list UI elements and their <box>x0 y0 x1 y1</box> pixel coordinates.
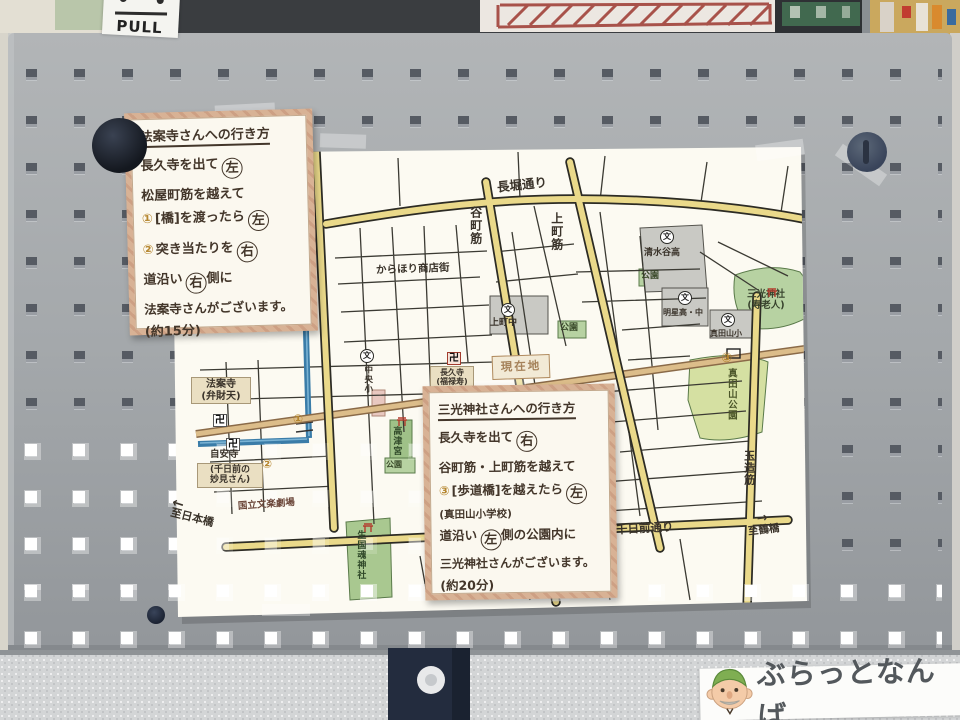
note-line: 側に <box>206 271 232 287</box>
photo-of-pegboard-map: PULL 長堀通り 谷町筋 上町筋 松屋町筋 玉造筋 千日前通り からほり商店街… <box>0 0 960 720</box>
note-line: 三光神社さんがございます。 <box>440 553 602 572</box>
step-number-3: ③ <box>439 483 450 498</box>
note-line: [橋]を渡ったら <box>155 209 245 226</box>
step-number-1: ① <box>142 212 153 227</box>
circled-right: 右 <box>516 431 537 452</box>
circled-left: 左 <box>566 483 587 504</box>
note-sanko-directions: 三光神社さんへの行き方 長久寺を出て右 谷町筋・上町筋を越えて ③[歩道橋]を越… <box>423 384 618 601</box>
note-line: [歩道橋]を越えたら <box>451 481 563 498</box>
note-hoanji-directions: 法案寺さんへの行き方 長久寺を出て左 松屋町筋を越えて ①[橋]を渡ったら左 ②… <box>124 109 318 336</box>
pull-label: PULL <box>116 17 163 37</box>
note-line: 側の公園内に <box>501 526 576 542</box>
note-line: 道沿い <box>439 528 477 544</box>
note-line: 松屋町筋を越えて <box>141 181 299 204</box>
note-line: 突き当たりを <box>156 241 234 258</box>
pull-door-sign: PULL <box>102 0 180 38</box>
note-line: 谷町筋・上町筋を越えて <box>439 455 601 476</box>
magnet-right-slot <box>863 140 869 164</box>
note-line: (約20分) <box>440 573 602 594</box>
magnet-small <box>147 606 165 624</box>
note-line: 長久寺を出て <box>438 429 513 445</box>
note-line: 長久寺を出て <box>140 157 218 174</box>
magnet-large <box>92 118 147 173</box>
circled-left: 左 <box>248 210 270 232</box>
buratto-namba-logo: ぶらっとなんば <box>699 663 960 720</box>
note-line-small: (真田山小学校) <box>439 505 601 522</box>
logo-text: ぶらっとなんば <box>756 647 960 720</box>
note-line: 道沿い <box>143 272 182 288</box>
circled-left: 左 <box>221 157 243 179</box>
door-sign-line <box>115 12 167 15</box>
circled-right: 右 <box>237 241 259 263</box>
circled-left: 左 <box>480 529 501 550</box>
scene-graphic <box>0 0 960 720</box>
note-hoanji-title: 法案寺さんへの行き方 <box>139 123 270 148</box>
note-sanko-title: 三光神社さんへの行き方 <box>438 397 576 421</box>
step-number-2: ② <box>143 243 154 258</box>
mascot-icon <box>705 662 753 717</box>
note-line: 法案寺さんがございます。 <box>144 295 302 318</box>
circled-right: 右 <box>185 272 207 294</box>
door-sign-dots <box>120 0 164 4</box>
